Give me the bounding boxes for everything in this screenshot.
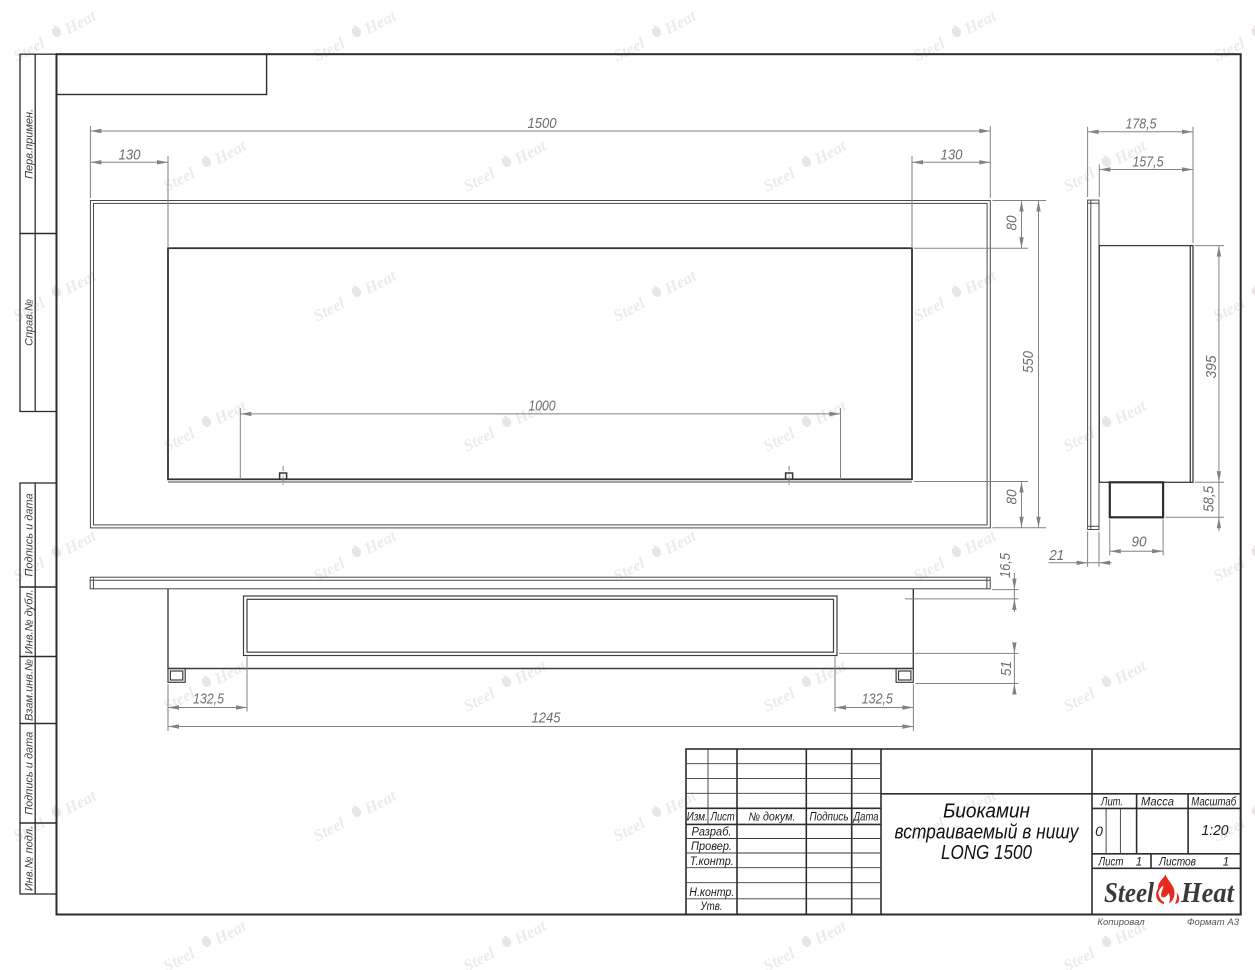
svg-text:90: 90 [1132, 534, 1148, 551]
svg-text:Изм.: Изм. [687, 812, 708, 824]
svg-text:№ докум.: № докум. [749, 812, 796, 824]
svg-text:1500: 1500 [528, 115, 558, 132]
svg-text:Лист: Лист [1098, 857, 1124, 869]
svg-text:178,5: 178,5 [1126, 116, 1158, 133]
svg-text:Масса: Масса [1141, 797, 1174, 809]
svg-text:Лист: Лист [710, 812, 735, 824]
svg-text:LONG 1500: LONG 1500 [941, 842, 1032, 864]
svg-text:Справ.№: Справ.№ [23, 299, 35, 346]
svg-text:550: 550 [1020, 350, 1037, 373]
svg-text:21: 21 [1048, 547, 1064, 564]
svg-text:Steel: Steel [1104, 877, 1155, 909]
svg-text:1: 1 [1136, 857, 1142, 869]
svg-text:1245: 1245 [532, 710, 562, 727]
svg-text:Дата: Дата [852, 812, 879, 824]
svg-text:Листов: Листов [1158, 857, 1196, 869]
svg-text:132,5: 132,5 [193, 691, 225, 708]
svg-text:16,5: 16,5 [997, 552, 1014, 578]
svg-text:Формат А3: Формат А3 [1187, 917, 1240, 928]
svg-text:Инв.№ подл.: Инв.№ подл. [23, 826, 35, 891]
svg-text:встраиваемый в нишу: встраиваемый в нишу [895, 822, 1080, 844]
svg-text:Подпись и дата: Подпись и дата [23, 732, 35, 815]
svg-text:Масштаб: Масштаб [1191, 797, 1236, 809]
svg-text:1000: 1000 [529, 398, 557, 415]
svg-text:130: 130 [941, 146, 964, 163]
svg-text:395: 395 [1203, 355, 1220, 379]
svg-text:51: 51 [998, 661, 1015, 676]
svg-text:58,5: 58,5 [1201, 485, 1218, 512]
svg-text:Разраб.: Разраб. [692, 827, 732, 839]
svg-text:Т.контр.: Т.контр. [690, 856, 734, 868]
svg-text:Перв.примен.: Перв.примен. [23, 109, 35, 179]
svg-text:Н.контр.: Н.контр. [689, 887, 734, 899]
svg-text:Лит.: Лит. [1100, 797, 1123, 809]
svg-text:Биокамин: Биокамин [943, 801, 1030, 823]
svg-text:Подпись: Подпись [810, 812, 849, 824]
svg-text:130: 130 [119, 146, 142, 163]
svg-text:Утв.: Утв. [700, 901, 723, 913]
svg-text:132,5: 132,5 [862, 691, 894, 708]
svg-text:80: 80 [1004, 215, 1021, 231]
svg-text:Взам.инв.№: Взам.инв.№ [23, 659, 35, 721]
svg-text:Инв.№ дубл.: Инв.№ дубл. [23, 590, 35, 655]
svg-text:80: 80 [1004, 489, 1021, 505]
svg-text:Heat: Heat [1180, 877, 1235, 909]
svg-text:1:20: 1:20 [1202, 822, 1230, 839]
svg-text:Провер.: Провер. [691, 841, 732, 853]
svg-text:0: 0 [1095, 823, 1103, 839]
svg-text:Подпись и дата: Подпись и дата [23, 493, 35, 576]
svg-text:Копировал: Копировал [1097, 917, 1145, 928]
svg-text:157,5: 157,5 [1133, 153, 1165, 170]
svg-text:1: 1 [1223, 857, 1229, 869]
